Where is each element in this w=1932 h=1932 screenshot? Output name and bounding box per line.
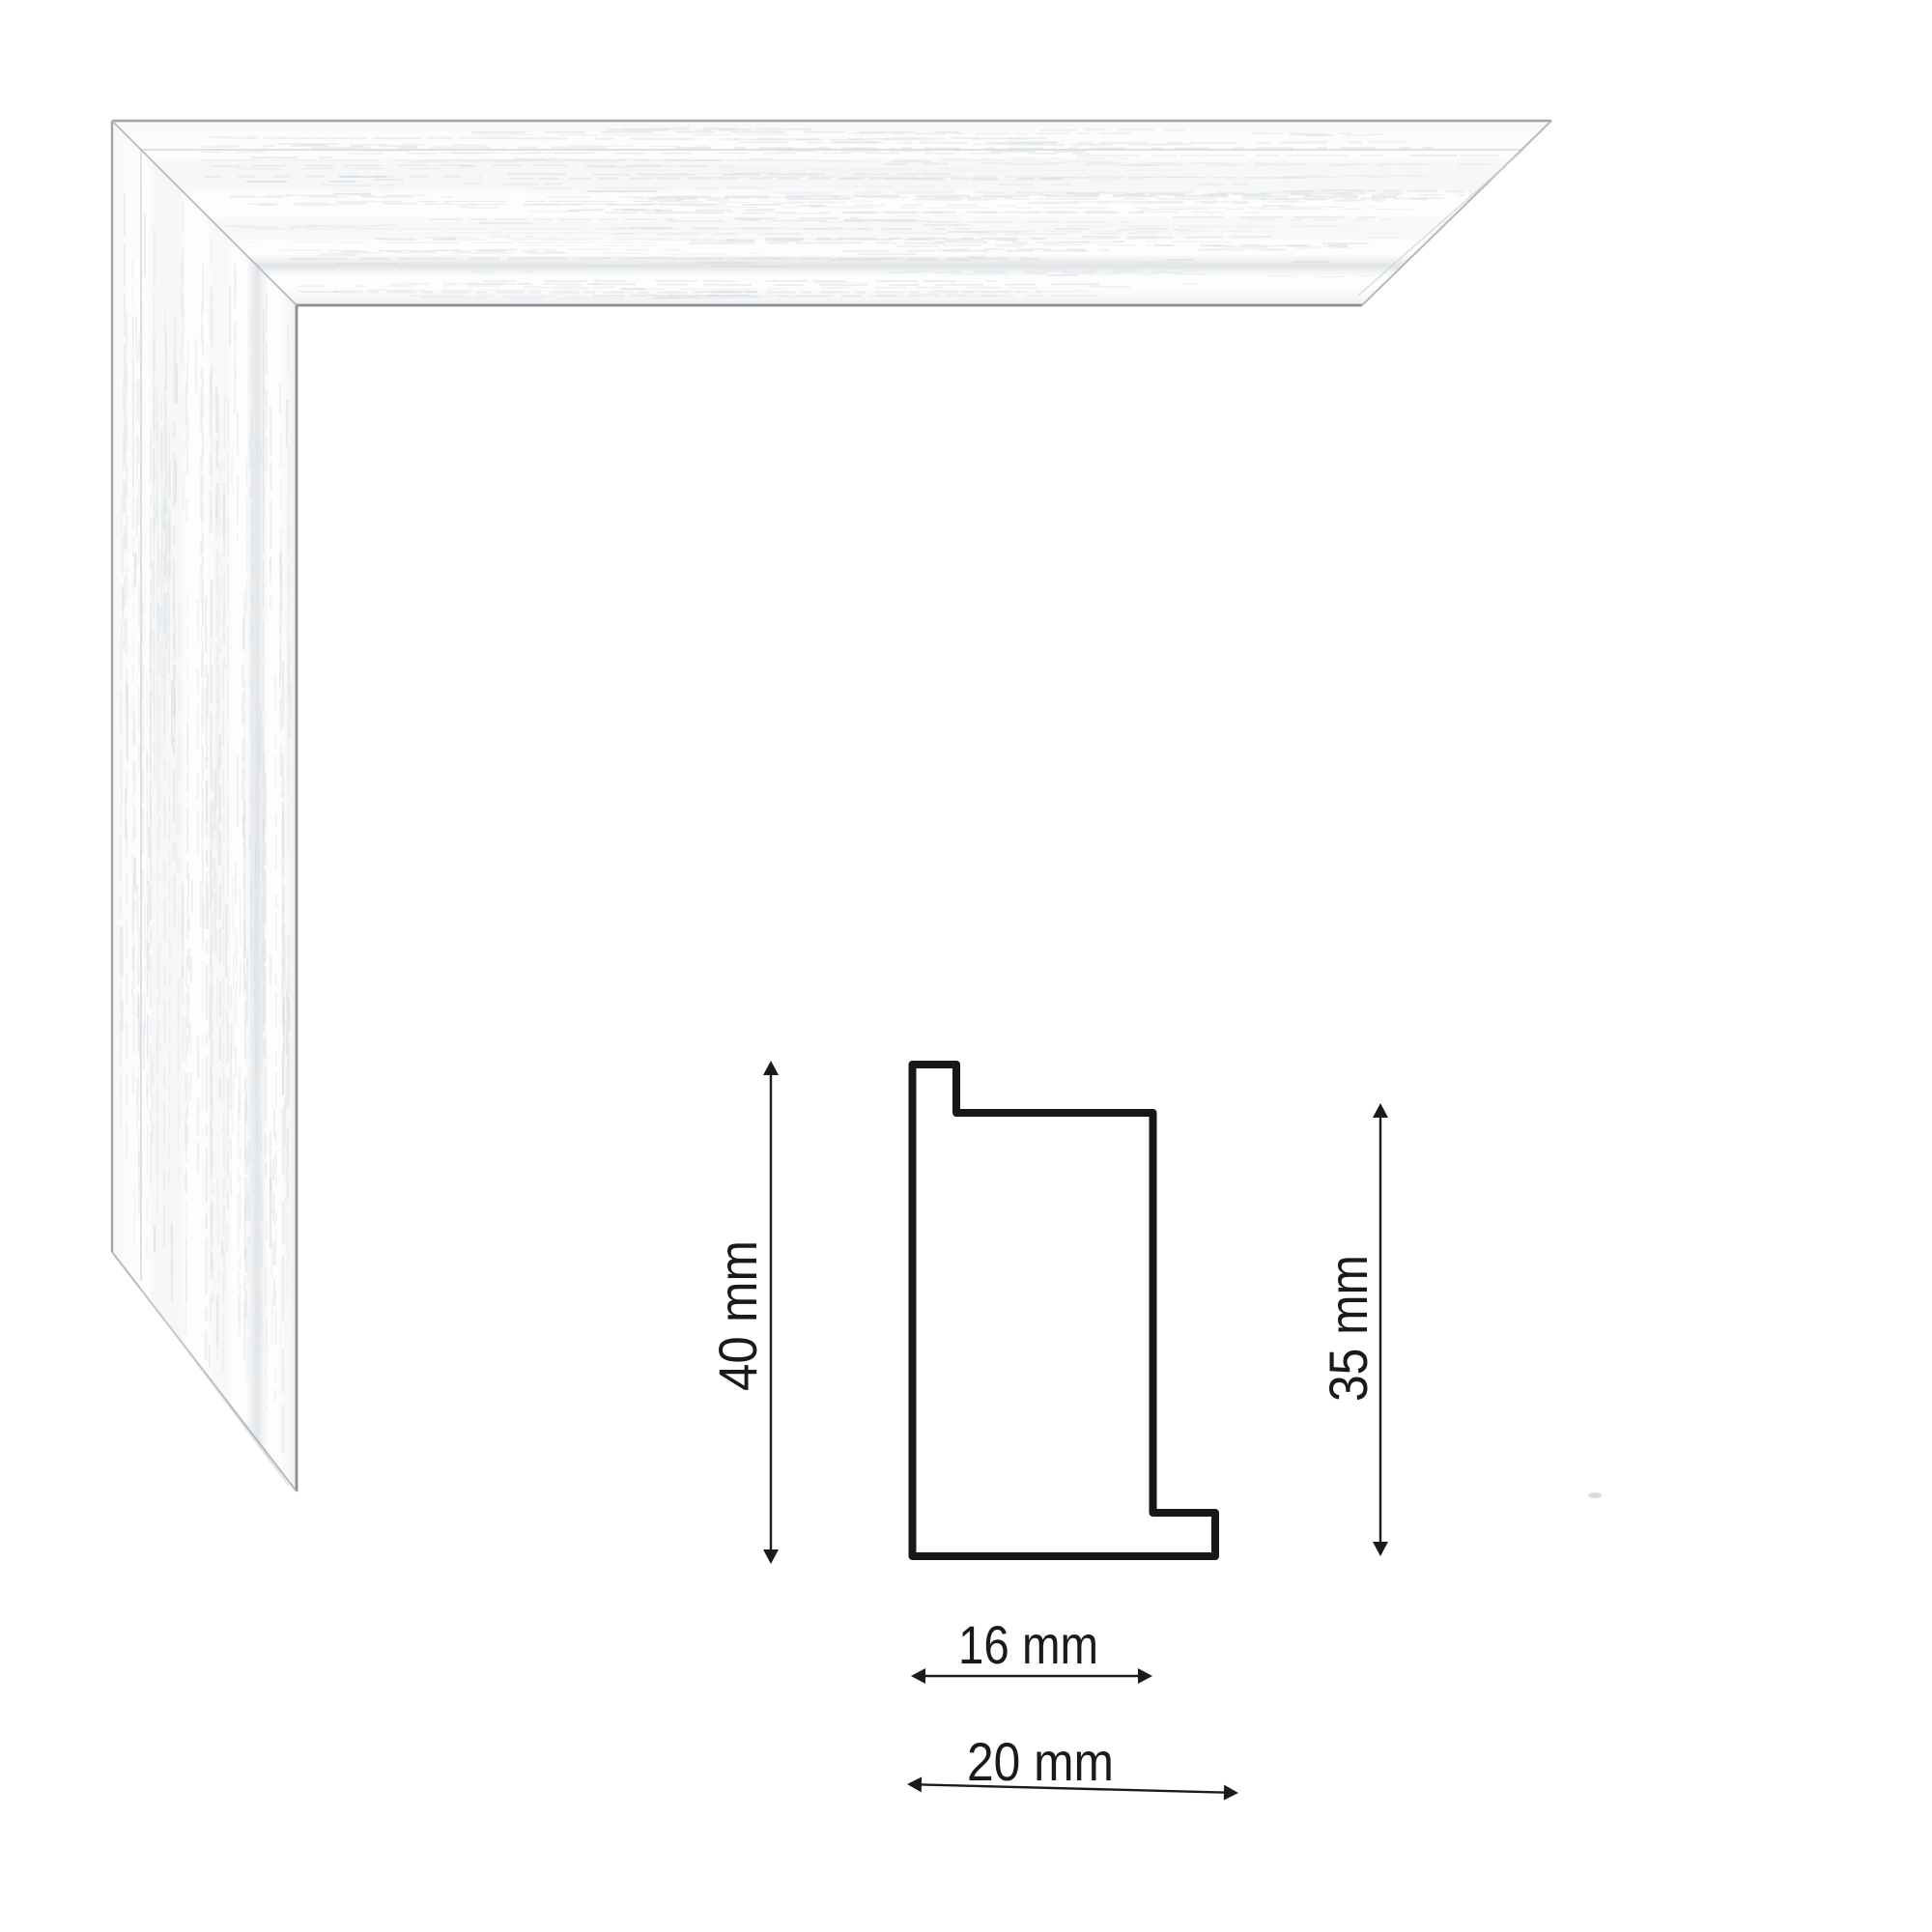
svg-text:40 mm: 40 mm	[707, 1240, 768, 1391]
svg-text:16 mm: 16 mm	[958, 1614, 1098, 1675]
svg-text:20 mm: 20 mm	[967, 1731, 1114, 1792]
svg-text:35 mm: 35 mm	[1318, 1255, 1378, 1402]
